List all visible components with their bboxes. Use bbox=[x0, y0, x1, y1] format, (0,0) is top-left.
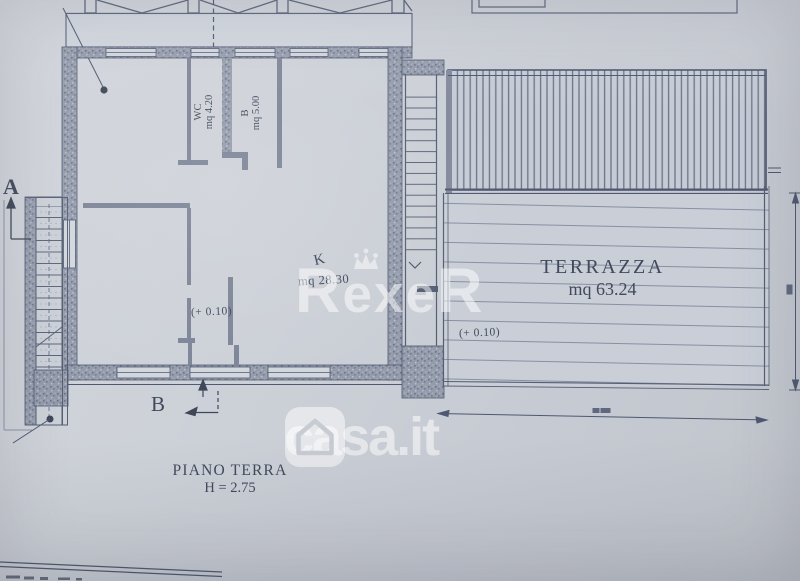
section-arrow-b bbox=[186, 380, 218, 416]
room-area: mq 5.00 bbox=[251, 96, 262, 130]
direction-chevron bbox=[409, 262, 421, 268]
room-label-terrace: TERRAZZA mq 63.24 bbox=[520, 257, 685, 299]
floor-title: PIANO TERRA H = 2.75 bbox=[149, 463, 311, 496]
room-area: mq 63.24 bbox=[520, 280, 685, 299]
pergola-hatch bbox=[445, 70, 781, 194]
reference-dot bbox=[100, 86, 107, 93]
room-name: WC bbox=[193, 104, 204, 121]
sheet-border-bottom bbox=[0, 562, 222, 581]
staircase-right bbox=[402, 60, 444, 398]
dimension-line-horizontal bbox=[438, 409, 767, 424]
room-area-kitchen: mq 28.30 bbox=[298, 273, 350, 289]
roof-truss bbox=[66, 0, 412, 14]
floor-plan-photo: WC mq 4.20 B mq 5.00 K mq 28.30 TERRAZZA… bbox=[0, 0, 800, 581]
section-label-a: A bbox=[3, 175, 19, 199]
room-label-wc: WC mq 4.20 bbox=[180, 88, 228, 136]
section-label-b: B bbox=[151, 393, 165, 416]
room-name: TERRAZZA bbox=[520, 257, 685, 279]
elevation-label-terrace: (+ 0.10) bbox=[459, 326, 501, 340]
floor-height: H = 2.75 bbox=[149, 481, 311, 497]
window bbox=[117, 367, 330, 378]
floor-name: PIANO TERRA bbox=[149, 463, 311, 480]
staircase-left bbox=[4, 197, 68, 443]
dimension-line-vertical bbox=[787, 193, 800, 390]
elevation-label-interior: (+ 0.10) bbox=[191, 305, 233, 319]
room-name: B bbox=[240, 110, 251, 117]
room-label-bath: B mq 5.00 bbox=[227, 89, 275, 137]
room-area: mq 4.20 bbox=[204, 95, 215, 129]
top-right-outline bbox=[472, 0, 737, 13]
